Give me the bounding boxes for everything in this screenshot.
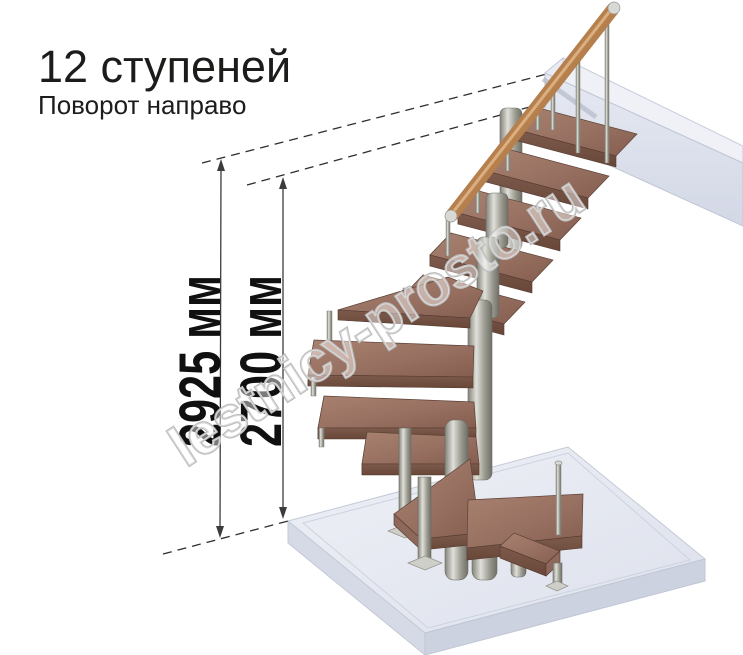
arrow-down-icon: [216, 526, 224, 538]
page-title: 12 ступеней: [38, 41, 291, 92]
newel-post: [556, 463, 561, 535]
diagram-canvas: 2925 мм 2700 мм 12 ступеней Поворот напр…: [0, 0, 743, 655]
arrow-up-icon: [217, 159, 225, 171]
arrow-down-icon: [279, 507, 287, 519]
dashed-floor-line: [163, 521, 288, 554]
baluster: [605, 15, 609, 163]
staircase-diagram: 2925 мм 2700 мм 12 ступеней Поворот напр…: [0, 0, 743, 655]
handrail-end-cap: [608, 2, 620, 14]
baluster: [576, 53, 580, 153]
tread-connector-post: [319, 428, 324, 447]
page-subtitle: Поворот направо: [38, 90, 246, 120]
arrow-up-icon: [279, 177, 287, 189]
handrail-end-cap: [445, 210, 457, 222]
